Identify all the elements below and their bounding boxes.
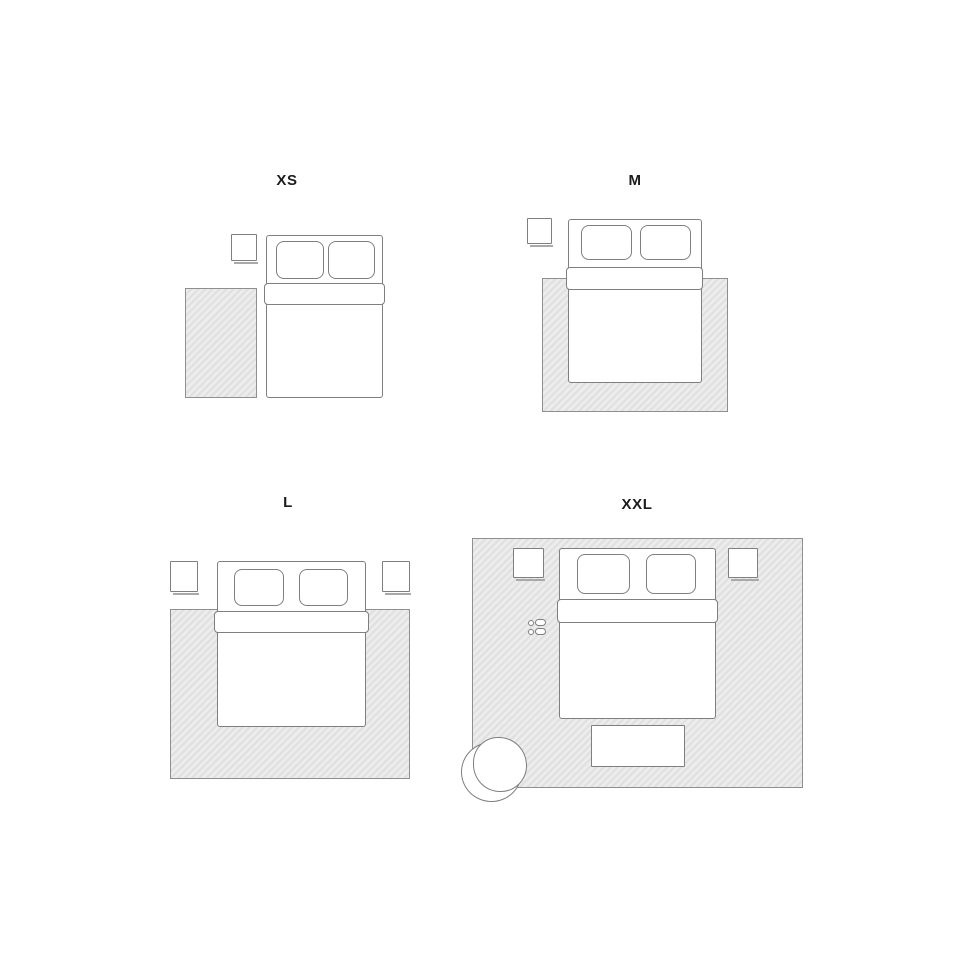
size-label-xxl: XXL: [577, 496, 697, 513]
pillow-icon: [577, 554, 630, 594]
rug-xs: [185, 288, 257, 398]
armchair-seat: [473, 737, 527, 792]
bench-icon: [591, 725, 685, 767]
pillow-icon: [640, 225, 691, 260]
pillow-icon: [581, 225, 632, 260]
pillow-icon: [276, 241, 324, 279]
pillow-icon: [299, 569, 348, 606]
duvet-fold-icon: [264, 283, 385, 305]
nightstand-icon: [513, 548, 544, 578]
duvet-fold-icon: [557, 599, 718, 623]
pillow-icon: [646, 554, 696, 594]
slipper-icon: [528, 628, 546, 635]
nightstand-icon: [170, 561, 198, 592]
slippers-icon: [528, 619, 546, 635]
pillow-icon: [234, 569, 284, 606]
rug-size-guide-diagram: XS M L XXL: [0, 0, 970, 971]
bed-icon: [559, 548, 716, 719]
size-label-xs: XS: [227, 172, 347, 189]
nightstand-icon: [728, 548, 758, 578]
bed-icon: [568, 219, 702, 383]
pillow-icon: [328, 241, 375, 279]
size-label-l: L: [228, 494, 348, 511]
size-label-m: M: [575, 172, 695, 189]
duvet-fold-icon: [566, 267, 703, 290]
nightstand-icon: [382, 561, 410, 592]
bed-icon: [266, 235, 383, 398]
bed-icon: [217, 561, 366, 727]
nightstand-icon: [231, 234, 257, 261]
nightstand-icon: [527, 218, 552, 244]
duvet-fold-icon: [214, 611, 369, 633]
slipper-icon: [528, 619, 546, 626]
